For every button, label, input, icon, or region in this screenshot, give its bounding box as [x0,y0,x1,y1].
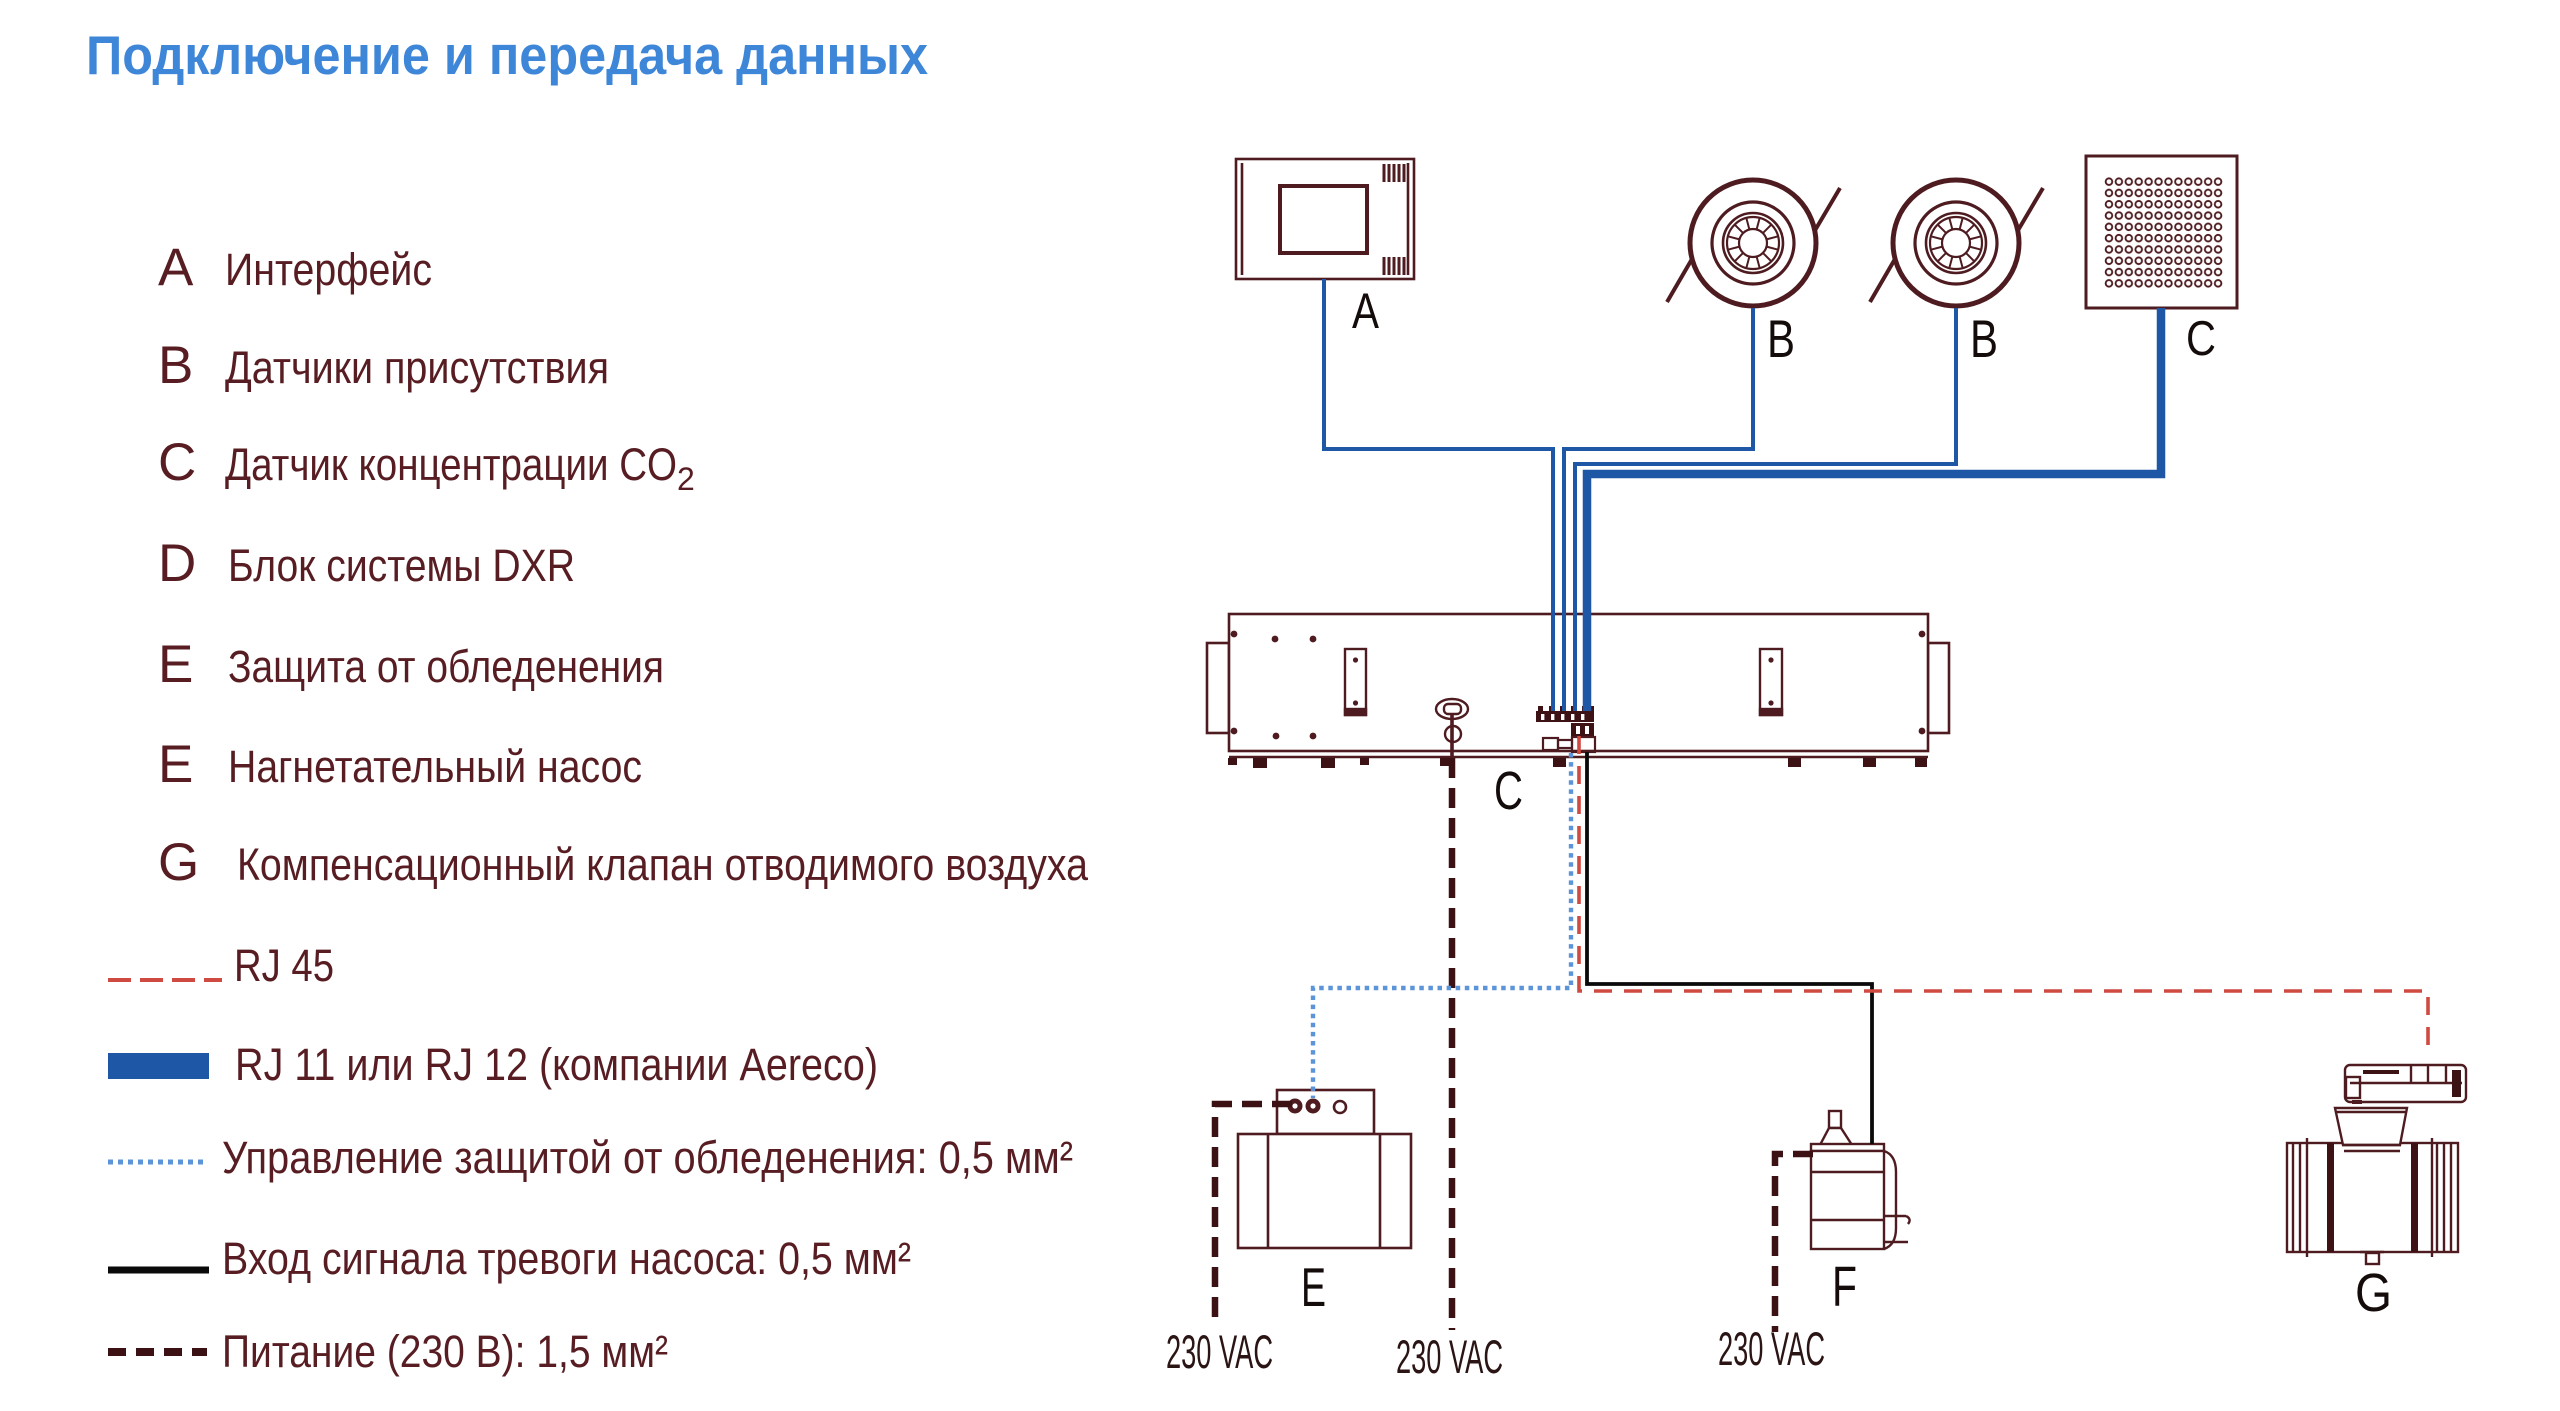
svg-text:230 VAC: 230 VAC [1718,1322,1825,1375]
svg-text:C: C [1494,761,1523,821]
svg-text:230 VAC: 230 VAC [1166,1325,1273,1378]
svg-text:G: G [2355,1263,2392,1323]
svg-text:B: B [1970,310,1998,369]
svg-text:G: G [158,833,199,892]
svg-text:RJ 11 или RJ 12 (компании Aer: RJ 11 или RJ 12 (компании Aereco) [235,1039,878,1090]
svg-text:Нагнетательный насос: Нагнетательный насос [228,741,642,792]
svg-text:Защита от обледенения: Защита от обледенения [228,641,664,692]
svg-text:Подключение и передача данных: Подключение и передача данных [86,24,928,86]
svg-text:Датчики присутствия: Датчики присутствия [225,342,609,393]
svg-text:Питание (230 В): 1,5 мм²: Питание (230 В): 1,5 мм² [222,1326,668,1377]
svg-text:Датчик концентрации CO2: Датчик концентрации CO2 [225,439,695,497]
svg-text:Блок системы DXR: Блок системы DXR [228,540,575,591]
svg-text:Компенсационный клапан отводим: Компенсационный клапан отводимого воздух… [237,839,1089,890]
svg-text:Интерфейс: Интерфейс [225,244,432,295]
svg-text:A: A [158,238,194,297]
svg-text:C: C [158,433,196,492]
svg-text:Вход сигнала тревоги насоса: 0: Вход сигнала тревоги насоса: 0,5 мм² [222,1233,911,1284]
svg-text:E: E [1301,1256,1326,1318]
svg-text:C: C [2186,312,2216,366]
svg-text:D: D [158,534,196,593]
svg-text:RJ 45: RJ 45 [234,940,334,991]
svg-text:230 VAC: 230 VAC [1396,1330,1503,1383]
svg-text:E: E [158,735,193,794]
svg-text:A: A [1352,283,1380,339]
svg-text:B: B [158,336,193,395]
svg-text:Управление защитой от обледене: Управление защитой от обледенения: 0,5 м… [222,1132,1073,1183]
svg-text:B: B [1767,310,1795,369]
svg-text:F: F [1832,1255,1857,1319]
svg-text:E: E [158,635,193,694]
